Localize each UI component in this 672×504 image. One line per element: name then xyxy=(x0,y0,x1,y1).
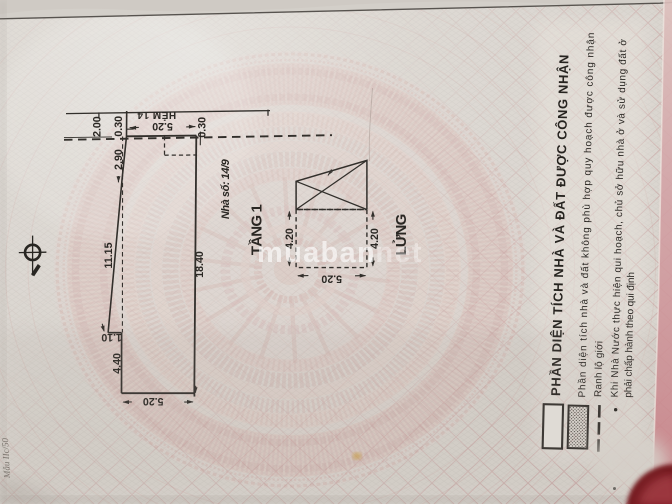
svg-text:muaban: muaban xyxy=(257,237,376,269)
svg-text:.net: .net xyxy=(366,237,423,269)
